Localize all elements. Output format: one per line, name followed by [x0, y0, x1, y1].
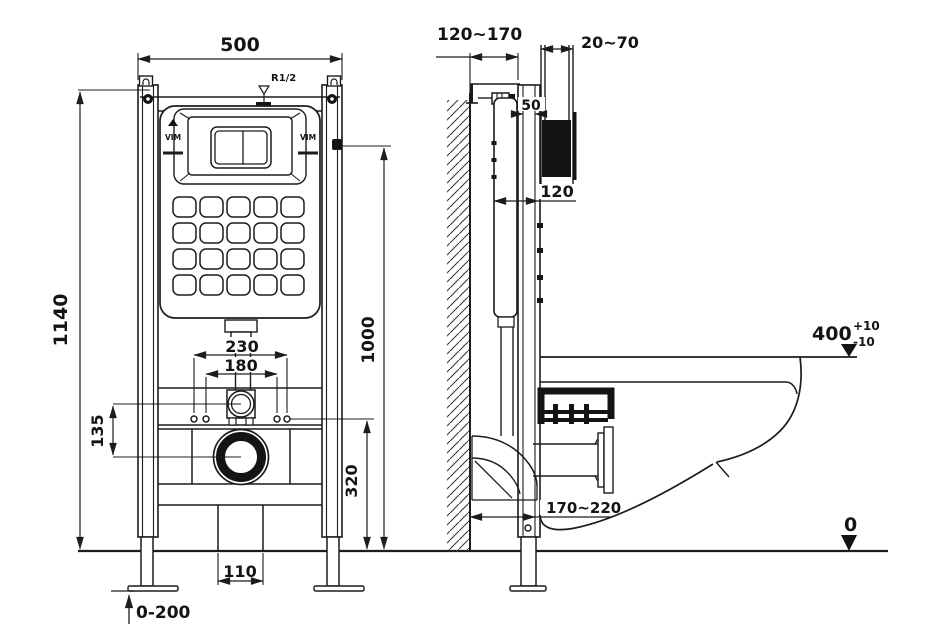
top-mounting-brackets [140, 76, 341, 86]
dim-axis-offset: 135 [88, 414, 107, 447]
dim-outlet-height: 320 [342, 464, 361, 497]
floor-bracket [158, 505, 322, 551]
dim-flush-pipe-spacing: 230 [225, 337, 258, 356]
dim-bolt-spacing: 180 [224, 356, 257, 375]
side-flush-pipe [498, 317, 514, 436]
dim-install-depth-top: 120~170 [437, 25, 522, 45]
dim-install-depth-bottom: 170~220 [546, 499, 621, 517]
dim-leg-adjust: 0-200 [136, 603, 191, 623]
zero-level-triangle-icon [841, 535, 857, 551]
dim-bowl-height: 400 [812, 323, 852, 345]
flush-connector [533, 427, 613, 493]
dim-finish-depth: 20~70 [581, 33, 639, 52]
dim-bowl-height-plus: +10 [853, 319, 880, 333]
brand-mark-right: VIM [300, 133, 316, 142]
cistern-side-profile [492, 98, 518, 317]
post-leg [510, 537, 546, 591]
dim-floor-bracket-width: 110 [223, 562, 256, 581]
technical-drawing-page: VIM VIM [0, 0, 940, 627]
dim-rail-depth: 50 [521, 98, 541, 114]
dim-frame-height: 1140 [50, 294, 72, 347]
frame-post [518, 85, 543, 537]
actuator-fitting [332, 139, 342, 150]
wall-hatch [447, 100, 470, 551]
dim-frame-depth: 120 [540, 182, 573, 201]
dim-upper-height: 1000 [359, 316, 379, 363]
rail-fixing-holes [143, 94, 337, 104]
flush-bend-housing [227, 390, 255, 425]
dim-frame-width: 500 [220, 34, 260, 56]
flush-plate-assembly [174, 109, 306, 184]
flush-buttons [215, 131, 267, 164]
inlet-thread-label: R1/2 [271, 73, 296, 84]
flush-plate-shaft [541, 45, 577, 190]
mounting-studs [541, 391, 611, 424]
dim-bowl-height-minus: -10 [853, 335, 875, 349]
side-view: 120~170 20~70 50 120 400 +10 -10 170~22 [436, 25, 880, 591]
brand-mark-left: VIM [165, 133, 181, 142]
toilet-frame-installation-diagram: VIM VIM [0, 0, 940, 627]
dim-floor-level: 0 [844, 514, 857, 536]
